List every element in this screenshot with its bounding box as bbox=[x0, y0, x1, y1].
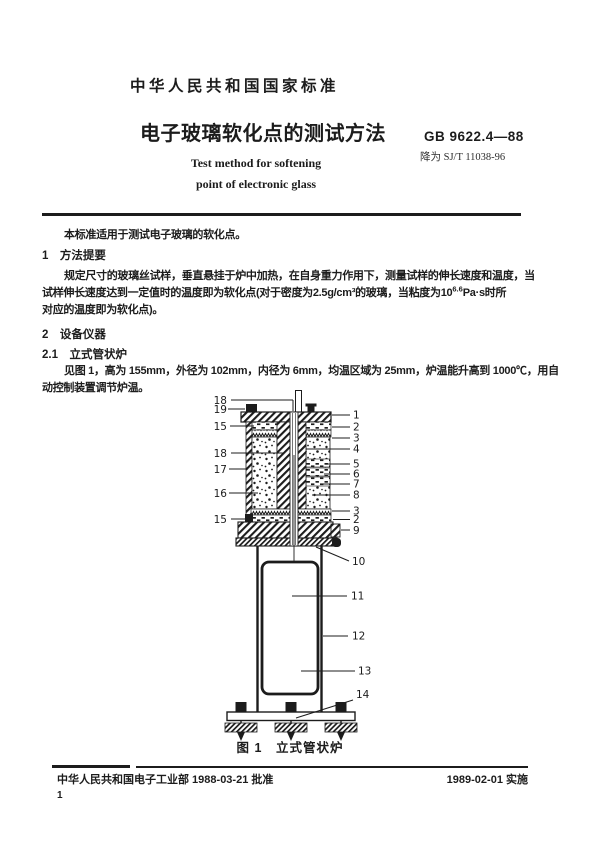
callout-9: 9 bbox=[353, 525, 360, 537]
footer-divider-right bbox=[136, 766, 528, 768]
callout-17: 17 bbox=[214, 464, 227, 476]
document-title-en-line1: Test method for softening bbox=[140, 156, 372, 171]
callout-15-bottom: 15 bbox=[214, 514, 227, 526]
furnace-top-assembly bbox=[241, 391, 331, 423]
footer-divider-left bbox=[52, 765, 130, 768]
flange-side-bolt bbox=[331, 524, 340, 537]
furnace-flange bbox=[236, 522, 341, 547]
callout-11: 11 bbox=[351, 591, 364, 603]
observation-window bbox=[262, 562, 318, 694]
callout-1: 1 bbox=[353, 410, 360, 422]
section-1-text-line2: 试样伸长速度达到一定值时的温度即为软化点(对于密度为2.5g/cm³的玻璃，当粘… bbox=[42, 284, 506, 300]
superseded-note: 降为 SJ/T 11038-96 bbox=[420, 149, 505, 164]
heater-band-lower bbox=[306, 477, 330, 486]
top-bolt-head bbox=[306, 404, 317, 407]
page-number: 1 bbox=[57, 790, 63, 801]
section-2-1-heading: 2.1 立式管状炉 bbox=[42, 346, 127, 362]
flange-lower bbox=[236, 538, 337, 546]
callout-left-labels: 18 19 15 18 17 16 15 bbox=[214, 395, 228, 526]
section-1-text-line1: 规定尺寸的玻璃丝试样，垂直悬挂于炉中加热，在自身重力作用下，测量试样的伸长速度和… bbox=[64, 267, 535, 283]
lower-frame bbox=[258, 546, 322, 712]
flange-side-knob bbox=[332, 538, 341, 547]
callout-14: 14 bbox=[356, 689, 370, 701]
header-divider bbox=[42, 213, 521, 216]
left-insulation bbox=[252, 437, 277, 509]
section-2-heading: 2 设备仪器 bbox=[42, 326, 106, 342]
callout-15-top: 15 bbox=[214, 421, 227, 433]
viscosity-exponent: 6.6 bbox=[452, 284, 462, 293]
section-2-1-text-line2: 动控制装置调节炉温。 bbox=[42, 379, 149, 395]
document-page: 中华人民共和国国家标准 电子玻璃软化点的测试方法 GB 9622.4—88 降为… bbox=[0, 0, 600, 856]
callout-19: 19 bbox=[214, 404, 227, 416]
viscosity-text-pre: 试样伸长速度达到一定值时的温度即为软化点(对于密度为2.5g/cm³的玻璃，当粘… bbox=[42, 287, 452, 299]
left-outer-wall bbox=[246, 422, 252, 523]
callout-right-labels: 1 2 3 4 5 6 7 8 3 2 9 10 11 12 13 14 bbox=[351, 410, 371, 702]
callout-13: 13 bbox=[358, 666, 371, 678]
top-plate bbox=[241, 412, 331, 422]
base-assembly bbox=[225, 702, 357, 741]
flange-upper bbox=[238, 522, 333, 538]
top-left-bolt bbox=[246, 404, 257, 412]
base-bolt-center bbox=[286, 702, 297, 712]
central-core-right bbox=[298, 422, 306, 509]
callout-10: 10 bbox=[352, 556, 365, 568]
base-plate bbox=[227, 712, 355, 721]
callout-12: 12 bbox=[352, 631, 365, 643]
section-2-1-text-line1: 见图 1，高为 155mm，外径为 102mm，内径为 6mm，均温区域为 25… bbox=[64, 362, 559, 378]
implementation-date: 1989-02-01 实施 bbox=[447, 771, 528, 787]
callout-18-mid: 18 bbox=[214, 448, 227, 460]
national-standard-heading: 中华人民共和国国家标准 bbox=[130, 74, 339, 96]
callout-4: 4 bbox=[353, 444, 360, 456]
callout-16: 16 bbox=[214, 488, 228, 500]
standard-code: GB 9622.4—88 bbox=[424, 129, 524, 144]
approval-statement: 中华人民共和国电子工业部 1988-03-21 批准 bbox=[57, 771, 273, 787]
callout-8: 8 bbox=[353, 490, 360, 502]
section-1-text-line3: 对应的温度即为软化点)。 bbox=[42, 301, 163, 317]
base-bolt-left bbox=[236, 702, 247, 712]
document-title-en-line2: point of electronic glass bbox=[140, 177, 372, 192]
heater-band-upper bbox=[306, 459, 330, 467]
section-1-heading: 1 方法提要 bbox=[42, 247, 106, 263]
scope-paragraph: 本标准适用于测试电子玻璃的软化点。 bbox=[42, 226, 246, 242]
central-core-left bbox=[277, 422, 290, 509]
suspension-tube bbox=[296, 391, 302, 413]
figure-1-vertical-tube-furnace: 18 19 15 18 17 16 15 1 2 3 4 5 6 7 8 3 2… bbox=[170, 388, 395, 754]
figure-caption: 图 1 立式管状炉 bbox=[180, 737, 400, 756]
document-title-zh: 电子玻璃软化点的测试方法 bbox=[140, 117, 386, 146]
heater-band-middle bbox=[306, 468, 330, 476]
viscosity-text-post: Pa·s时所 bbox=[463, 287, 506, 299]
